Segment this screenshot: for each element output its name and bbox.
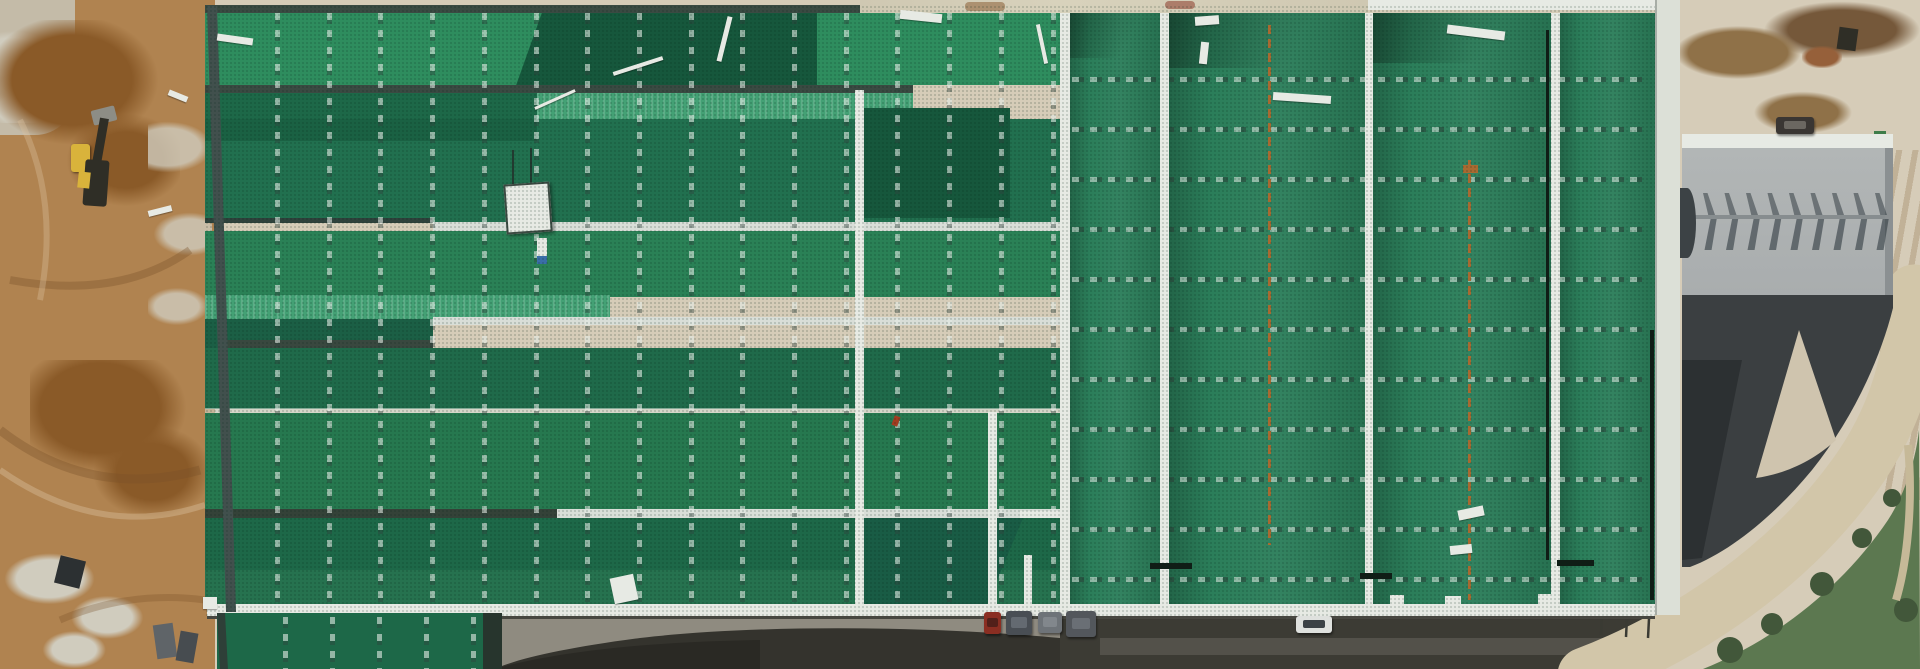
container-3-window — [1072, 618, 1090, 630]
aerial-photo-stage — [0, 0, 1920, 669]
red-truck-cab — [984, 612, 1001, 634]
vehicles-group — [0, 0, 1920, 669]
dark-suv-window — [1784, 121, 1807, 129]
container-1 — [1006, 611, 1032, 635]
dark-suv — [1776, 117, 1814, 134]
container-1-window — [1011, 617, 1027, 628]
container-2 — [1038, 612, 1062, 633]
container-3 — [1066, 611, 1096, 637]
white-car — [1296, 616, 1332, 633]
white-car-window — [1303, 620, 1325, 628]
container-2-window — [1043, 617, 1057, 626]
red-truck-cab-window — [987, 618, 997, 628]
